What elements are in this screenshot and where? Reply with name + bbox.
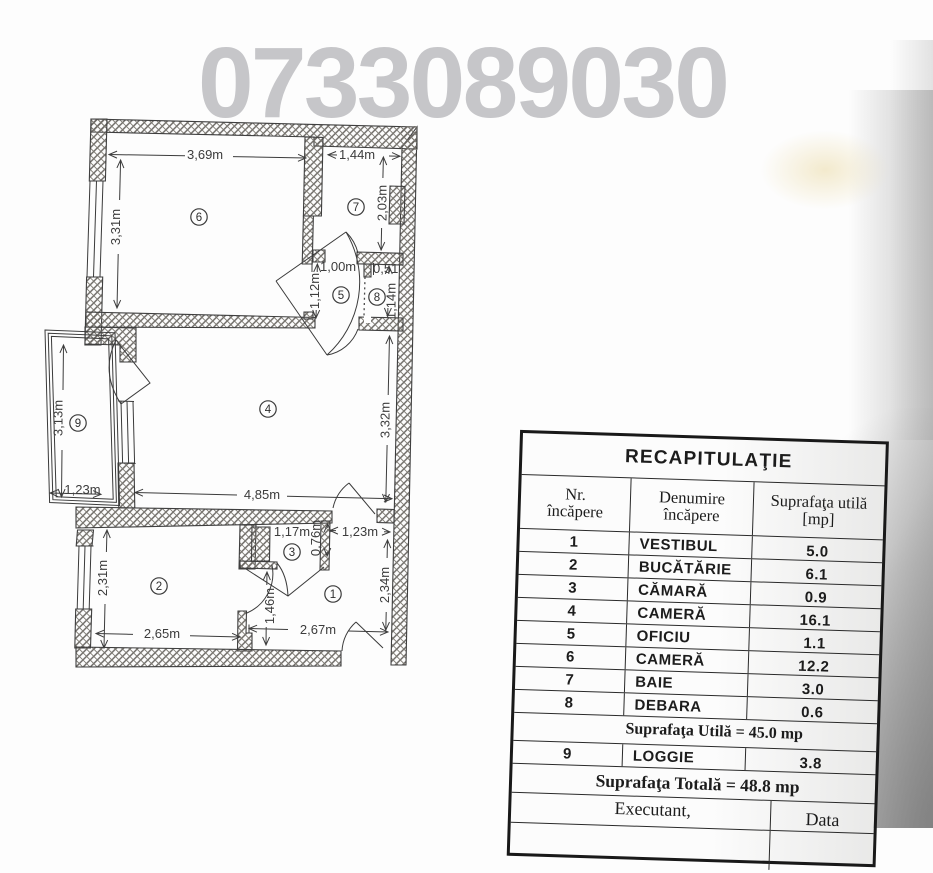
svg-text:3,32m: 3,32m — [378, 402, 393, 438]
svg-text:3,31m: 3,31m — [108, 209, 123, 245]
svg-text:3,69m: 3,69m — [187, 147, 223, 162]
svg-text:1,12m: 1,12m — [307, 273, 322, 309]
svg-text:2,31m: 2,31m — [95, 560, 110, 596]
svg-text:8: 8 — [374, 292, 380, 304]
svg-text:2,65m: 2,65m — [144, 626, 180, 641]
svg-text:2: 2 — [156, 581, 162, 593]
svg-text:1,44m: 1,44m — [339, 147, 375, 162]
svg-text:2,34m: 2,34m — [377, 567, 392, 603]
svg-text:3,13m: 3,13m — [51, 400, 66, 436]
svg-text:1,14m: 1,14m — [384, 283, 399, 319]
svg-text:2,03m: 2,03m — [375, 185, 390, 221]
svg-text:9: 9 — [75, 418, 81, 430]
svg-text:4,85m: 4,85m — [244, 487, 280, 502]
svg-text:3: 3 — [289, 547, 295, 559]
svg-text:0,76m: 0,76m — [308, 520, 323, 556]
svg-text:1,23m: 1,23m — [342, 524, 378, 539]
svg-text:1,17m: 1,17m — [274, 524, 310, 539]
svg-text:1,23m: 1,23m — [64, 482, 100, 497]
svg-text:0,51: 0,51 — [373, 261, 398, 276]
svg-text:1: 1 — [330, 589, 336, 601]
svg-text:2,67m: 2,67m — [300, 622, 336, 637]
svg-text:1,46m: 1,46m — [262, 588, 277, 624]
svg-text:4: 4 — [265, 404, 272, 416]
svg-text:5: 5 — [338, 290, 344, 302]
svg-text:1,00m: 1,00m — [320, 259, 356, 274]
svg-text:6: 6 — [196, 212, 202, 224]
svg-text:7: 7 — [353, 202, 359, 214]
